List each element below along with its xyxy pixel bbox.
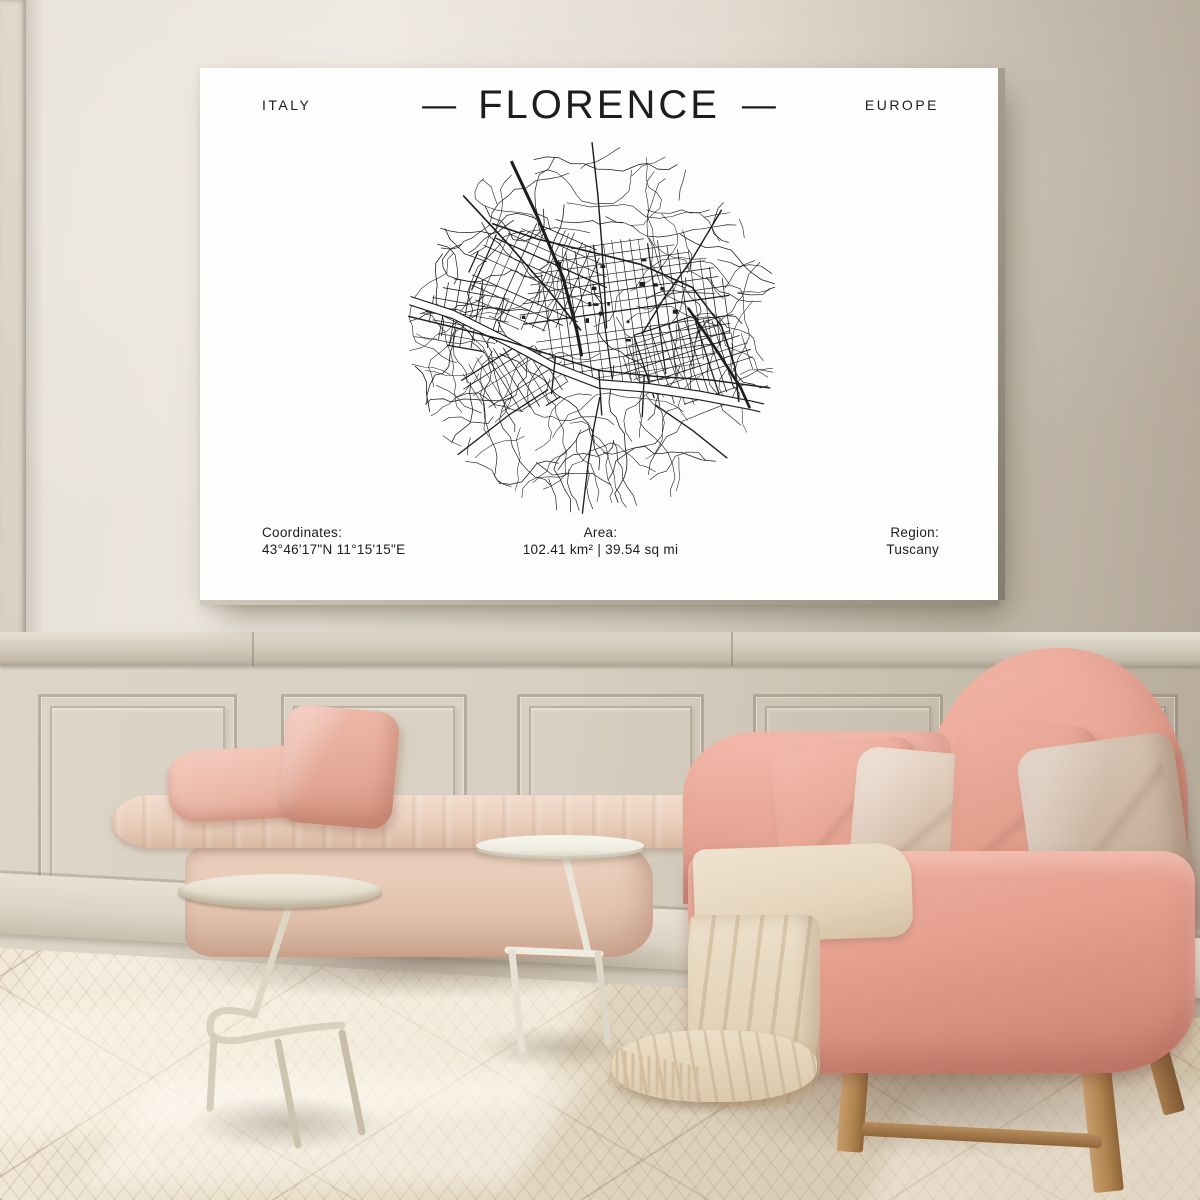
- florence-map-svg: [401, 135, 787, 521]
- table-shadow: [185, 1095, 385, 1151]
- continent-label: EUROPE: [865, 97, 939, 113]
- title-dash-right: —: [742, 88, 776, 122]
- city-map-circle: [401, 135, 787, 521]
- area-label: Area:: [523, 524, 679, 541]
- area-value: 102.41 km² | 39.54 sq mi: [523, 541, 679, 558]
- region-value: Tuscany: [886, 541, 939, 558]
- rail-seam: [252, 632, 254, 666]
- country-label: ITALY: [262, 97, 311, 113]
- rail-seam: [731, 632, 733, 666]
- coordinates-value: 43°46'17"N 11°15'15"E: [262, 541, 405, 558]
- bench-pillow-upright: [277, 703, 401, 830]
- region-block: Region: Tuscany: [886, 524, 939, 558]
- side-table-left-top: [178, 874, 382, 908]
- coordinates-block: Coordinates: 43°46'17"N 11°15'15"E: [262, 524, 405, 558]
- side-table-right-top: [476, 835, 644, 856]
- poster-title: FLORENCE: [478, 83, 720, 128]
- area-block: Area: 102.41 km² | 39.54 sq mi: [523, 524, 679, 558]
- poster-title-group: — FLORENCE —: [422, 82, 776, 128]
- coordinates-label: Coordinates:: [262, 524, 405, 541]
- room-scene: ITALY EUROPE — FLORENCE — Coordinates: 4…: [0, 0, 1200, 1200]
- title-dash-left: —: [422, 88, 456, 122]
- region-label: Region:: [886, 524, 939, 541]
- florence-map-poster: ITALY EUROPE — FLORENCE — Coordinates: 4…: [200, 68, 998, 600]
